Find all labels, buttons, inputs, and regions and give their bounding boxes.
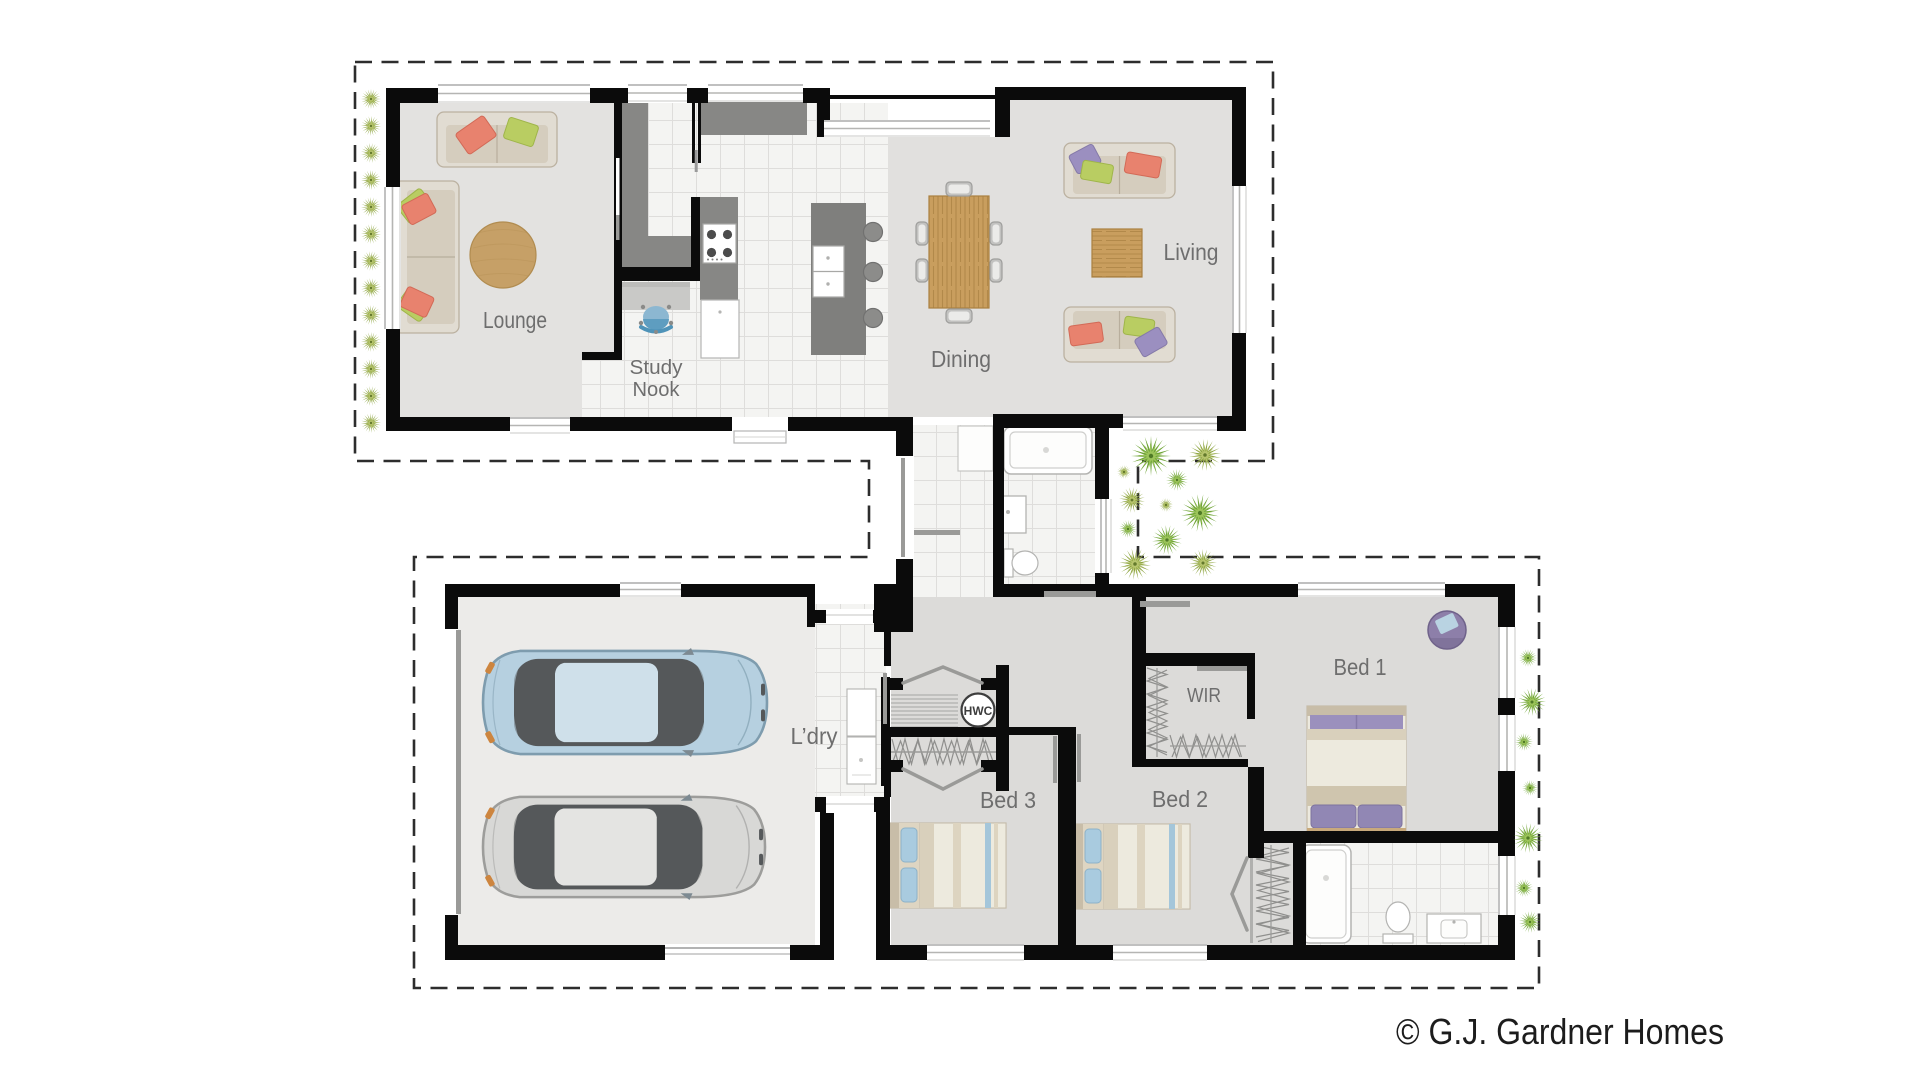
svg-text:Bed 1: Bed 1 [1334,654,1387,680]
svg-text:Bed 2: Bed 2 [1152,786,1208,812]
svg-text:Living: Living [1164,239,1219,265]
svg-text:WIR: WIR [1187,685,1221,707]
svg-text:L’dry: L’dry [791,723,838,749]
svg-text:HWC: HWC [964,704,993,718]
svg-text:Lounge: Lounge [483,307,547,333]
svg-text:Nook: Nook [633,379,681,401]
svg-text:Study: Study [630,357,683,379]
svg-text:Bed 3: Bed 3 [980,787,1036,813]
svg-text:© G.J. Gardner Homes: © G.J. Gardner Homes [1396,1011,1724,1052]
svg-text:Dining: Dining [931,346,991,372]
